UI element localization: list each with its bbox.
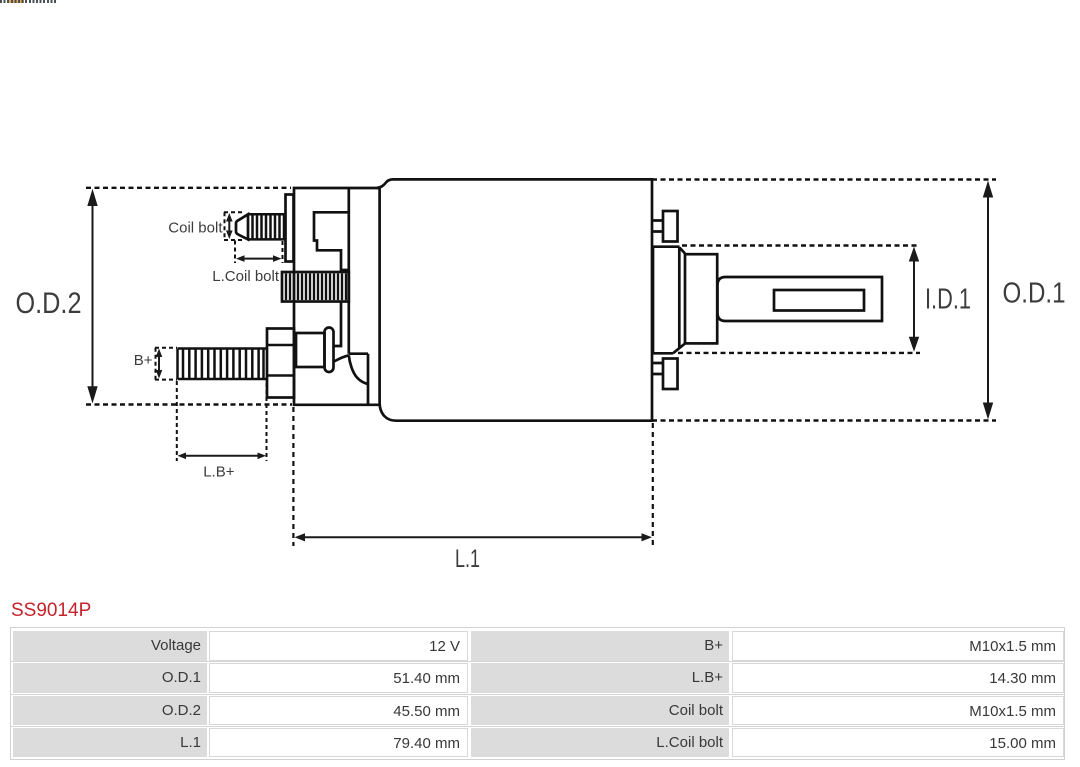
svg-text:O.D.2: O.D.2 bbox=[16, 287, 82, 320]
svg-text:L.Coil bolt: L.Coil bolt bbox=[212, 268, 280, 285]
svg-text:L.1: L.1 bbox=[455, 545, 480, 573]
svg-text:B+: B+ bbox=[134, 352, 153, 369]
svg-text:Coil bolt: Coil bolt bbox=[168, 220, 223, 237]
svg-text:L.B+: L.B+ bbox=[203, 464, 235, 481]
svg-text:O.D.1: O.D.1 bbox=[1003, 278, 1066, 310]
svg-text:I.D.1: I.D.1 bbox=[925, 284, 971, 316]
